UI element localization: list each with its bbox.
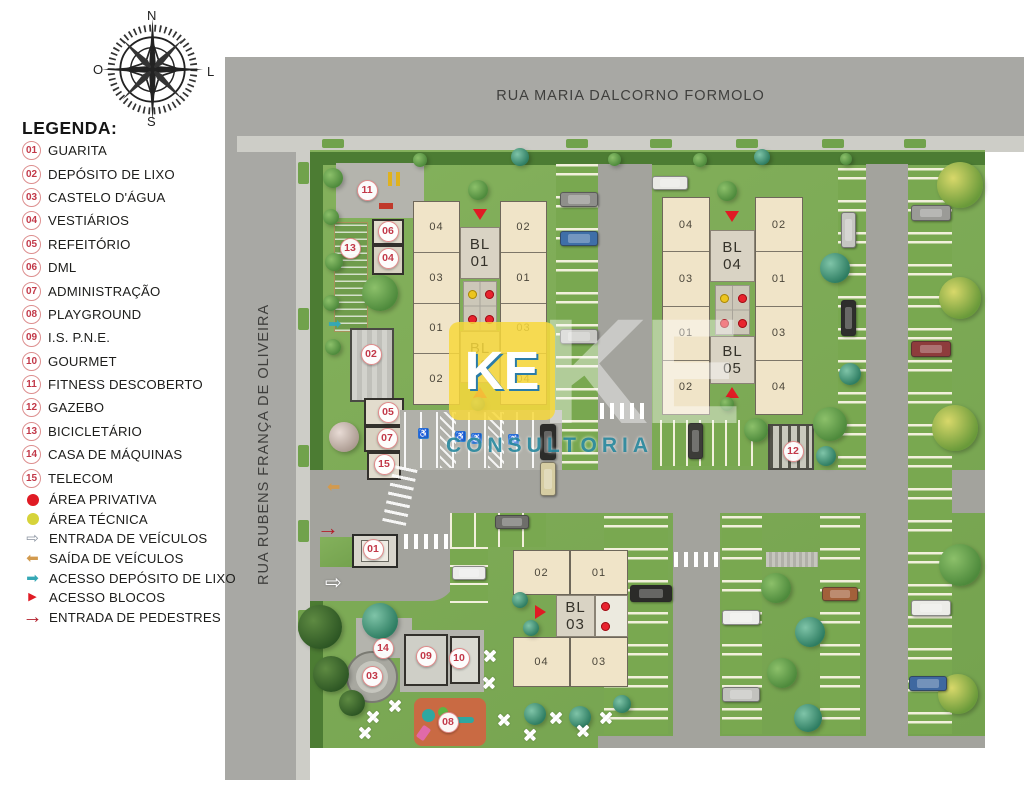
legend-symbol-item: ÁREA PRIVATIVA [22,490,234,510]
tree-icon [693,153,707,167]
parking-strip [556,164,598,470]
bl04-core-label: BL 04 [710,230,755,282]
wheelchair-icon: ♿ [508,434,519,445]
curb-island [298,162,309,184]
compass-west-label: O [93,62,103,77]
acesso-bloco-icon [473,209,487,220]
legend-symbol-item: →ENTRADA DE PEDESTRES [22,607,234,627]
unit-cell: 01 [663,306,709,360]
compass-rose: N S O L [95,12,210,127]
legend-number-badge: 03 [22,188,41,207]
road-east-vertical [866,164,908,736]
car-icon [560,231,598,246]
unit-label: 04 [516,373,530,385]
map-marker-07: 07 [377,428,398,449]
picnic-table-icon [388,699,402,713]
legend-number-badge: 09 [22,328,41,347]
area-tecnica-dot-icon [22,513,43,525]
picnic-table-icon [523,728,537,742]
tree-icon [840,153,852,165]
unit-label: 03 [516,322,530,334]
legend: LEGENDA: 01GUARITA02DEPÓSITO DE LIXO03CA… [22,118,234,627]
picnic-table-icon [483,649,497,663]
unit-cell: 03 [756,306,802,360]
bl03-tech-cell [595,595,628,637]
picnic-table-icon [549,711,563,725]
bl01-02-right-wing: 02010304 [500,201,547,405]
unit-cell: 04 [663,198,709,251]
legend-item-07: 07ADMINISTRAÇÃO [22,279,234,302]
legend-number-badge: 10 [22,352,41,371]
unit-label: 02 [772,219,786,231]
bl03-unit: 04 [513,637,570,687]
map-marker-05: 05 [378,402,399,423]
unit-cell: 03 [663,251,709,305]
legend-item-13: 13BICICLETÁRIO [22,420,234,443]
map-marker-11: 11 [357,180,378,201]
picnic-table-icon [366,710,380,724]
fitness-equipment [396,172,400,186]
map-marker-03: 03 [362,666,383,687]
fitness-area [336,163,424,218]
legend-item-01: 01GUARITA [22,139,234,162]
legend-item-12: 12GAZEBO [22,396,234,419]
car-icon [722,687,760,702]
tree-icon [744,418,768,442]
legend-item-label: ACESSO BLOCOS [49,590,165,605]
bl04-05-right-wing: 02010304 [755,197,803,415]
area-privativa-dot [720,319,729,328]
wheelchair-icon: ♿ [418,428,429,439]
compass-north-label: N [147,8,156,23]
curb-island [298,520,309,542]
legend-item-label: PLAYGROUND [48,307,141,322]
unit-cell: 04 [756,360,802,414]
tree-icon [613,695,631,713]
acesso-blocos-triangle-icon: ▶ [22,592,43,603]
curb-island [822,139,844,148]
wheelchair-icon: ♿ [455,431,466,442]
map-marker-02: 02 [361,344,382,365]
map-marker-15: 15 [374,454,395,475]
tree-icon [339,690,365,716]
area-privativa-dot [738,319,747,328]
fitness-equipment [379,203,393,209]
curb-island [904,139,926,148]
curb-island [322,139,344,148]
map-marker-14: 14 [373,638,394,659]
tree-icon [323,295,339,311]
unit-label: 03 [429,272,443,284]
unit-label: 03 [772,327,786,339]
car-icon [560,329,598,344]
tree-icon [511,148,529,166]
car-icon [841,212,856,248]
unit-label: 01 [772,273,786,285]
unit-cell: 04 [414,202,459,252]
playground-equipment [422,709,435,722]
legend-item-09: 09I.S. P.N.E. [22,326,234,349]
legend-symbol-list: ÁREA PRIVATIVAÁREA TÉCNICA⇨ENTRADA DE VE… [22,490,234,627]
legend-number-badge: 14 [22,445,41,464]
unit-cell: 01 [501,252,546,303]
area-privativa-dot [485,315,494,324]
unit-label: 02 [679,381,693,393]
bl04-05-left-wing: 04030102 [662,197,710,415]
no-parking-hatch [488,412,504,468]
legend-item-label: I.S. P.N.E. [48,330,110,345]
street-left-label: RUA RUBENS FRANÇA DE OLIVEIRA [256,285,272,585]
legend-number-badge: 13 [22,422,41,441]
bl03-unit: 01 [570,550,628,595]
tree-icon [323,168,343,188]
tree-icon [313,656,349,692]
legend-item-label: FITNESS DESCOBERTO [48,377,203,392]
unit-label: 01 [429,322,443,334]
legend-number-badge: 05 [22,235,41,254]
road-bottom [598,736,985,748]
tree-icon [608,153,621,166]
car-icon [495,515,529,529]
curb-island [650,139,672,148]
unit-cell: 02 [663,360,709,414]
tree-icon [325,253,343,271]
paved-path [766,552,818,567]
legend-item-10: 10GOURMET [22,350,234,373]
bl05-core-label: BL 05 [710,336,755,384]
car-icon [911,341,951,357]
picnic-table-icon [599,711,613,725]
legend-item-02: 02DEPÓSITO DE LIXO [22,162,234,185]
legend-item-11: 11FITNESS DESCOBERTO [22,373,234,396]
unit-cell: 02 [414,353,459,404]
tree-icon [325,339,341,355]
area-privativa-dot [485,290,494,299]
unit-cell: 03 [414,252,459,303]
road-south-vertical [673,513,720,736]
tree-icon [512,592,528,608]
curb-island [298,445,309,467]
unit-cell: 03 [501,303,546,354]
legend-item-06: 06DML [22,256,234,279]
car-icon [911,600,951,616]
car-icon [722,610,760,625]
unit-label: 01 [679,327,693,339]
entrada-pedestres-arrow-icon: → [317,517,339,539]
tree-icon [323,209,339,225]
tree-icon [794,704,822,732]
tree-icon [767,658,797,688]
crosswalk [600,403,650,419]
legend-symbol-item: ▶ACESSO BLOCOS [22,588,234,608]
unit-label: 01 [516,272,530,284]
car-icon [452,566,486,580]
technical-core [715,285,750,335]
legend-item-label: CASTELO D'ÁGUA [48,190,165,205]
car-icon [841,300,856,336]
legend-symbol-item: ➡ACESSO DEPÓSITO DE LIXO [22,568,234,588]
unit-label: 02 [516,221,530,233]
legend-item-label: ÁREA PRIVATIVA [49,492,157,507]
legend-item-05: 05REFEITÓRIO [22,233,234,256]
picnic-table-icon [576,724,590,738]
road-central [598,164,652,470]
entrada-veiculos-arrow-icon: ⇨ [325,573,342,593]
tree-icon [839,363,861,385]
entrance-lawn-patch [320,537,352,567]
tree-icon [761,573,791,603]
area-privativa-dot [738,294,747,303]
deposito-lixo-building [350,328,394,402]
curb-island [736,139,758,148]
fitness-equipment [388,172,392,186]
legend-number-badge: 04 [22,211,41,230]
bl01-02-left-wing: 04030102 [413,201,460,405]
car-icon [630,585,672,602]
crosswalk [674,552,719,567]
legend-item-label: GAZEBO [48,400,104,415]
tree-icon [754,149,770,165]
car-icon [540,424,556,460]
legend-item-label: CASA DE MÁQUINAS [48,447,182,462]
map-marker-12: 12 [783,441,804,462]
tree-icon [468,180,488,200]
compass-east-label: L [207,64,214,79]
unit-label: 04 [429,221,443,233]
legend-item-label: BICICLETÁRIO [48,424,142,439]
car-icon [909,676,947,691]
unit-cell: 04 [501,353,546,404]
tree-icon [720,397,734,411]
legend-item-label: GUARITA [48,143,107,158]
picnic-table-icon [497,713,511,727]
bl02-core-label: BL 02 [460,331,500,383]
legend-number-badge: 11 [22,375,41,394]
legend-item-15: 15TELECOM [22,466,234,489]
parking-strip [820,516,860,734]
legend-item-label: SAÍDA DE VEÍCULOS [49,551,184,566]
compass-graphic [95,12,210,127]
acesso-deposito-arrow-icon: ➡ [328,317,341,333]
no-parking-hatch [440,412,456,468]
acesso-bloco-icon [535,605,546,619]
car-icon [911,205,951,221]
site-plan: RUA MARIA DALCORNO FORMOLO RUA RUBENS FR… [0,0,1024,785]
car-icon [540,462,556,496]
legend-item-label: DEPÓSITO DE LIXO [48,167,175,182]
legend-item-label: REFEITÓRIO [48,237,131,252]
street-top-label: RUA MARIA DALCORNO FORMOLO [237,88,1024,104]
legend-number-badge: 08 [22,305,41,324]
tree-icon [939,544,981,586]
entrada-veiculos-arrow-icon: ⇨ [22,531,43,546]
entrada-pedestres-arrow-icon: → [22,607,43,627]
unit-cell: 02 [501,202,546,252]
tree-icon [717,181,737,201]
unit-cell: 01 [414,303,459,354]
legend-number-badge: 06 [22,258,41,277]
building-bl04-05: 04030102 02010304 BL 04 BL 05 [662,197,803,415]
parking-strip [908,168,952,734]
map-marker-13: 13 [340,238,361,259]
legend-item-08: 08PLAYGROUND [22,303,234,326]
legend-item-label: VESTIÁRIOS [48,213,129,228]
map-marker-04: 04 [378,248,399,269]
legend-number-badge: 02 [22,165,41,184]
tree-icon [932,405,978,451]
area-privativa-dot [468,315,477,324]
legend-item-04: 04VESTIÁRIOS [22,209,234,232]
legend-symbol-item: ⇨ENTRADA DE VEÍCULOS [22,529,234,549]
tree-icon [471,397,485,411]
map-marker-08: 08 [438,712,459,733]
legend-item-label: ENTRADA DE PEDESTRES [49,610,221,625]
area-tecnica-dot [720,294,729,303]
legend-symbol-item: ➡SAÍDA DE VEÍCULOS [22,549,234,569]
map-marker-10: 10 [449,648,470,669]
acesso-bloco-icon [725,211,739,222]
legend-item-label: ACESSO DEPÓSITO DE LIXO [49,571,236,586]
legend-title: LEGENDA: [22,118,234,139]
area-tecnica-dot [468,290,477,299]
car-icon [688,423,703,459]
acesso-deposito-arrow-icon: ➡ [22,571,43,586]
tree-icon [816,446,836,466]
picnic-table-icon [482,676,496,690]
legend-item-label: ADMINISTRAÇÃO [48,284,161,299]
building-bl03: 02 01 BL 03 04 03 [513,550,628,687]
bl03-core-label: BL 03 [556,595,595,637]
building-bl01-02: 04030102 02010304 BL 01 BL 02 [413,201,547,405]
tree-icon [523,620,539,636]
tree-icon [413,153,427,167]
unit-label: 02 [429,373,443,385]
tree-icon [937,162,983,208]
tree-icon [795,617,825,647]
legend-item-label: GOURMET [48,354,117,369]
area-privativa-dot [601,602,610,611]
area-privativa-dot [601,622,610,631]
bl03-unit: 02 [513,550,570,595]
bl01-core-label: BL 01 [460,227,500,279]
legend-numbered-list: 01GUARITA02DEPÓSITO DE LIXO03CASTELO D'Á… [22,139,234,490]
map-marker-06: 06 [378,221,399,242]
tree-icon [820,253,850,283]
tree-icon [329,422,359,452]
legend-item-label: ENTRADA DE VEÍCULOS [49,531,207,546]
saida-veiculos-arrow-icon: ➡ [327,480,340,496]
map-marker-01: 01 [363,539,384,560]
tree-icon [813,407,847,441]
legend-number-badge: 12 [22,398,41,417]
wheelchair-icon: ♿ [471,433,482,444]
legend-item-label: ÁREA TÉCNICA [49,512,148,527]
unit-label: 04 [772,381,786,393]
technical-core [463,281,497,331]
car-icon [652,176,688,190]
picnic-table-icon [358,726,372,740]
legend-number-badge: 15 [22,469,41,488]
legend-item-label: TELECOM [48,471,113,486]
bl03-unit: 03 [570,637,628,687]
legend-symbol-item: ÁREA TÉCNICA [22,509,234,529]
tree-icon [524,703,546,725]
map-marker-09: 09 [416,646,437,667]
legend-number-badge: 01 [22,141,41,160]
car-icon [560,192,598,207]
unit-label: 03 [679,273,693,285]
curb-island [566,139,588,148]
unit-cell: 01 [756,251,802,305]
unit-cell: 02 [756,198,802,251]
tree-icon [939,277,981,319]
tree-icon [362,603,398,639]
tree-icon [362,275,398,311]
crosswalk [404,534,452,549]
legend-item-label: DML [48,260,76,275]
unit-label: 04 [679,219,693,231]
area-privativa-dot-icon [22,494,43,506]
legend-item-14: 14CASA DE MÁQUINAS [22,443,234,466]
saida-veiculos-arrow-icon: ➡ [22,551,43,566]
tree-icon [298,605,342,649]
curb-island [298,308,309,330]
legend-item-03: 03CASTELO D'ÁGUA [22,186,234,209]
legend-number-badge: 07 [22,282,41,301]
car-icon [822,587,858,601]
